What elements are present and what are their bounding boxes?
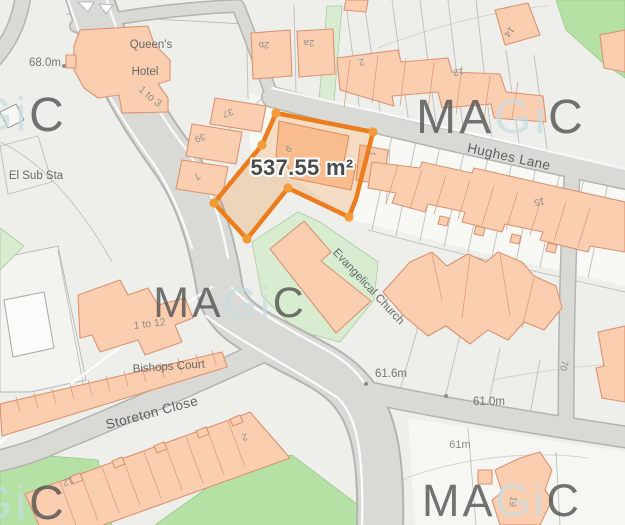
el-sub-sta-label: El Sub Sta (9, 170, 64, 182)
house-number: 12 (452, 65, 464, 78)
queens-hotel-label: Hotel (132, 66, 159, 78)
building (66, 55, 76, 68)
house-number: 2a (303, 37, 314, 48)
house-number: 2b (259, 39, 270, 50)
magic-watermark: MAGiC (422, 475, 582, 525)
magic-watermark: MAGiC (416, 91, 586, 144)
magic-watermark: MAGiC (153, 279, 307, 327)
building (344, 0, 368, 12)
map-canvas[interactable]: 68.0m Queen's Hotel 1 to 3 El Sub Sta 37… (0, 0, 625, 525)
building-2b (251, 30, 292, 79)
elevation-label: 61.6m (375, 368, 407, 380)
map-viewport[interactable]: 68.0m Queen's Hotel 1 to 3 El Sub Sta 37… (0, 0, 625, 525)
magic-watermark: MAGiC (0, 89, 67, 142)
building (600, 30, 625, 72)
house-number: 15 (533, 195, 545, 207)
elevation-label: 61m (449, 439, 470, 451)
magic-watermark: MAGiC (0, 477, 67, 525)
elevation-label: 68.0m (29, 57, 61, 69)
house-number: 70 (557, 359, 570, 372)
plot-area-label: 537.55 m² (251, 155, 354, 180)
elevation-label: 61.0m (473, 396, 505, 408)
building-2a (297, 29, 335, 77)
queens-hotel-label: Queen's (130, 39, 173, 51)
